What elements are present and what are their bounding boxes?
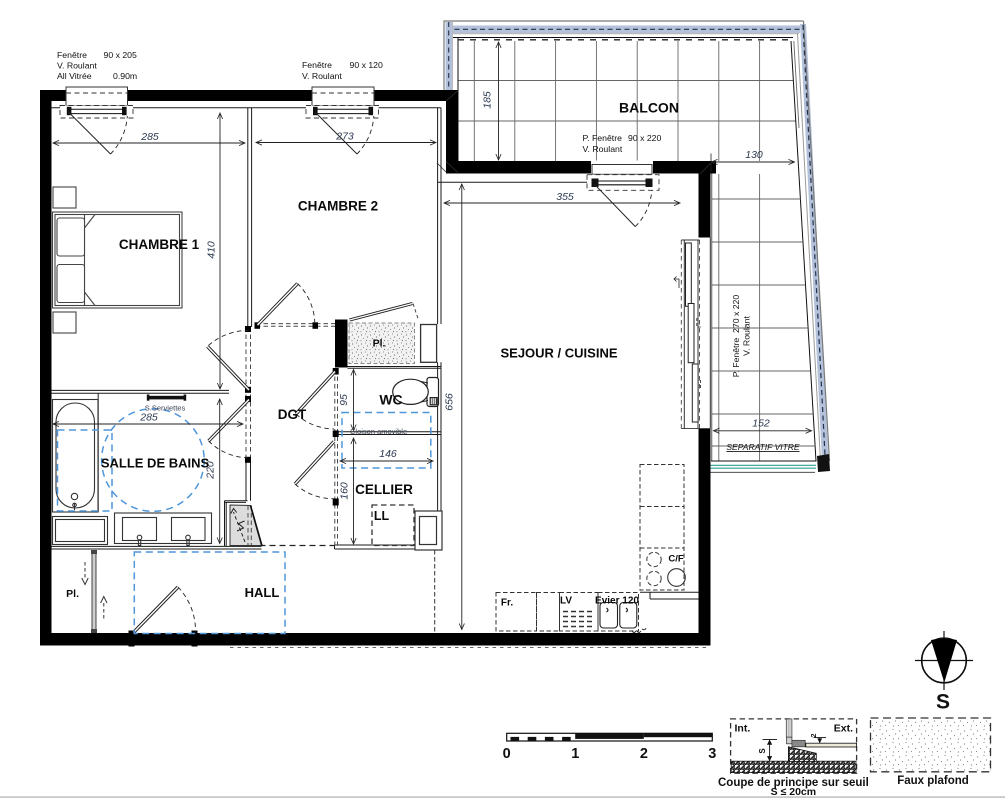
svg-text:1: 1 bbox=[571, 746, 579, 762]
svg-text:CHAMBRE 1: CHAMBRE 1 bbox=[119, 237, 200, 252]
svg-text:Int.: Int. bbox=[735, 723, 751, 735]
svg-text:LL: LL bbox=[374, 509, 390, 523]
svg-text:LV: LV bbox=[560, 596, 572, 607]
svg-text:90 x 205: 90 x 205 bbox=[104, 50, 137, 60]
svg-text:DGT: DGT bbox=[278, 407, 307, 422]
svg-text:V. Roulant: V. Roulant bbox=[583, 144, 623, 154]
svg-text:Ext.: Ext. bbox=[834, 723, 853, 735]
svg-text:0.90m: 0.90m bbox=[113, 71, 137, 81]
svg-text:Fr.: Fr. bbox=[501, 598, 513, 609]
svg-text:All Vitrée: All Vitrée bbox=[57, 71, 92, 81]
svg-text:Pl.: Pl. bbox=[373, 338, 386, 350]
svg-text:0: 0 bbox=[503, 746, 511, 762]
svg-text:285: 285 bbox=[140, 131, 159, 143]
svg-text:90 x 120: 90 x 120 bbox=[350, 60, 383, 70]
svg-text:2: 2 bbox=[809, 733, 818, 737]
svg-text:V. Roulant: V. Roulant bbox=[742, 316, 752, 356]
svg-text:BALCON: BALCON bbox=[619, 100, 679, 116]
svg-text:HALL: HALL bbox=[245, 585, 280, 600]
svg-text:130: 130 bbox=[745, 149, 763, 161]
svg-text:3: 3 bbox=[708, 746, 716, 762]
svg-text:CHAMBRE 2: CHAMBRE 2 bbox=[298, 199, 378, 214]
svg-text:SALLE DE BAINS: SALLE DE BAINS bbox=[101, 456, 210, 471]
svg-text:Evier 120: Evier 120 bbox=[595, 596, 639, 607]
svg-text:355: 355 bbox=[556, 191, 574, 203]
svg-text:152: 152 bbox=[752, 418, 770, 430]
svg-text:146: 146 bbox=[379, 448, 397, 460]
svg-text:Cloison amovible: Cloison amovible bbox=[350, 427, 407, 436]
svg-text:S: S bbox=[936, 691, 950, 714]
svg-text:P. Fenêtre 270 x 220: P. Fenêtre 270 x 220 bbox=[731, 295, 741, 378]
svg-text:SEPARATIF VITRE: SEPARATIF VITRE bbox=[726, 442, 800, 452]
svg-text:S.Serviettes: S.Serviettes bbox=[145, 404, 186, 413]
svg-text:CELLIER: CELLIER bbox=[355, 482, 413, 497]
svg-text:WC: WC bbox=[379, 392, 402, 408]
svg-text:160: 160 bbox=[339, 482, 351, 500]
svg-text:C/F: C/F bbox=[668, 554, 684, 565]
svg-text:410: 410 bbox=[206, 241, 218, 259]
svg-text:285: 285 bbox=[139, 412, 158, 424]
svg-text:Fenêtre: Fenêtre bbox=[302, 60, 332, 70]
svg-text:S: S bbox=[758, 748, 767, 754]
svg-text:95: 95 bbox=[338, 394, 350, 406]
svg-text:Faux plafond: Faux plafond bbox=[897, 775, 969, 787]
svg-text:P. Fenêtre: P. Fenêtre bbox=[583, 133, 623, 143]
svg-text:656: 656 bbox=[444, 393, 456, 411]
svg-text:Fenêtre: Fenêtre bbox=[57, 50, 87, 60]
svg-text:V. Roulant: V. Roulant bbox=[57, 61, 97, 71]
svg-text:90 x 220: 90 x 220 bbox=[628, 133, 661, 143]
svg-text:Pl.: Pl. bbox=[66, 588, 79, 600]
svg-text:SEJOUR / CUISINE: SEJOUR / CUISINE bbox=[500, 346, 617, 361]
svg-text:273: 273 bbox=[335, 131, 354, 143]
svg-text:V. Roulant: V. Roulant bbox=[302, 71, 342, 81]
svg-text:2: 2 bbox=[640, 746, 648, 762]
svg-text:185: 185 bbox=[482, 91, 494, 109]
